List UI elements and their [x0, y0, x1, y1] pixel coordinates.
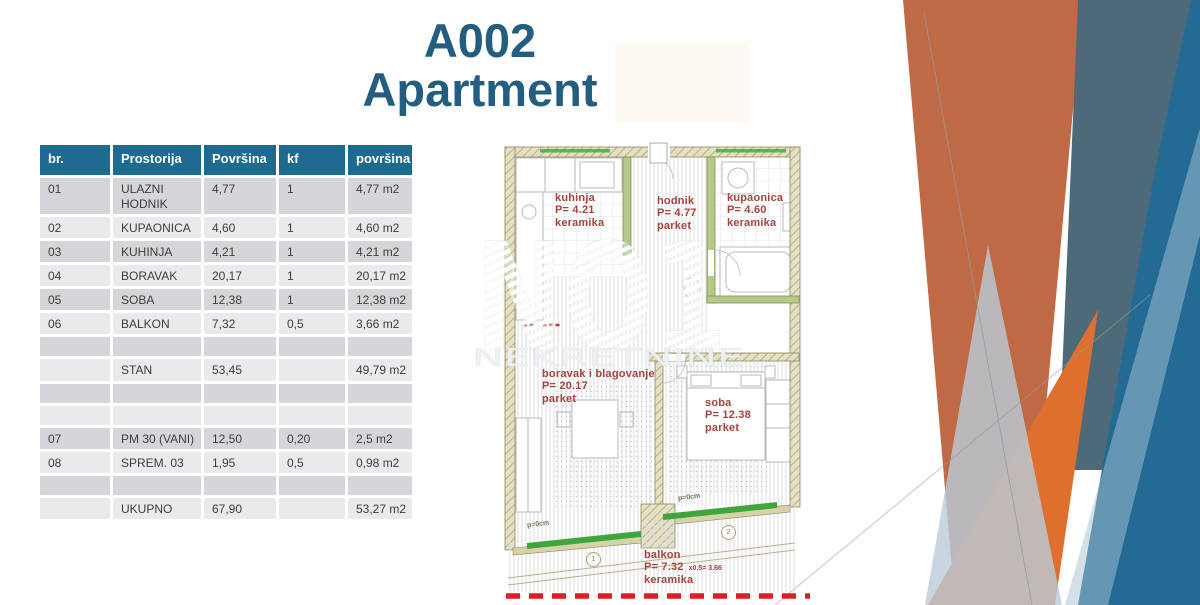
room-area: P= 4.77: [657, 207, 697, 219]
table-cell: [348, 337, 412, 356]
table-header-cell: površina: [348, 145, 412, 175]
table-cell: 08: [40, 452, 110, 473]
table-cell: 4,21: [204, 241, 276, 262]
room-floor-finish: keramika: [644, 574, 722, 586]
table-cell: [40, 359, 110, 381]
table-cell: [40, 406, 110, 425]
room-area-value: P= 12.38: [705, 409, 751, 421]
table-cell: KUPAONICA: [113, 217, 201, 238]
table-header-cell: Površina: [204, 145, 276, 175]
table-cell: [40, 337, 110, 356]
room-area: P= 20.17: [542, 380, 655, 392]
table-cell: 2,5 m2: [348, 428, 412, 449]
table-cell: 1: [279, 178, 345, 214]
table-row: 06BALKON7,320,53,66 m2: [40, 313, 412, 334]
table-row: UKUPNO67,9053,27 m2: [40, 498, 412, 519]
table-header-row: br.ProstorijaPovršinakfpovršina: [40, 145, 412, 175]
table-cell: [348, 406, 412, 425]
slide-title-line1: A002: [255, 16, 705, 65]
table-cell: 03: [40, 241, 110, 262]
table-cell: 4,21 m2: [348, 241, 412, 262]
table-cell: 4,60: [204, 217, 276, 238]
room-area: P= 4.60: [727, 204, 783, 216]
table-row: STAN53,4549,79 m2: [40, 359, 412, 381]
room-area: P= 12.38: [705, 409, 751, 421]
room-name: balkon: [644, 549, 722, 561]
room-name: kuhinja: [555, 192, 604, 204]
table-cell: 67,90: [204, 498, 276, 519]
table-cell: [40, 384, 110, 403]
table-row: [40, 406, 412, 425]
door-tag-2: 2: [721, 525, 736, 540]
table-cell: 1: [279, 265, 345, 286]
table-cell: SPREM. 03: [113, 452, 201, 473]
table-cell: [113, 476, 201, 495]
table-cell: [279, 476, 345, 495]
table-cell: [113, 337, 201, 356]
table-cell: 20,17: [204, 265, 276, 286]
area-table: br.ProstorijaPovršinakfpovršina01ULAZNI …: [40, 145, 412, 522]
table-cell: [348, 384, 412, 403]
corner-decoration: [775, 0, 1200, 605]
table-cell: 0,20: [279, 428, 345, 449]
table-cell: [113, 384, 201, 403]
room-label-kupaonica: kupaonicaP= 4.60keramika: [727, 192, 783, 229]
table-cell: [348, 476, 412, 495]
table-cell: PM 30 (VANI): [113, 428, 201, 449]
table-cell: 1: [279, 241, 345, 262]
table-cell: BALKON: [113, 313, 201, 334]
table-cell: 0,5: [279, 313, 345, 334]
table-cell: [113, 406, 201, 425]
table-cell: [279, 406, 345, 425]
table-cell: 4,60 m2: [348, 217, 412, 238]
table-cell: 02: [40, 217, 110, 238]
table-cell: 4,77: [204, 178, 276, 214]
table-cell: 05: [40, 289, 110, 310]
room-label-boravak: boravak i blagovanjeP= 20.17parket: [542, 368, 655, 405]
table-cell: 1: [279, 289, 345, 310]
room-area-value: P= 4.21: [555, 204, 595, 216]
table-cell: UKUPNO: [113, 498, 201, 519]
table-cell: 4,77 m2: [348, 178, 412, 214]
table-cell: ULAZNI HODNIK: [113, 178, 201, 214]
table-cell: 0,98 m2: [348, 452, 412, 473]
room-label-hodnik: hodnikP= 4.77parket: [657, 195, 697, 232]
table-cell: 06: [40, 313, 110, 334]
table-header-cell: br.: [40, 145, 110, 175]
room-floor-finish: keramika: [555, 217, 604, 229]
table-cell: 04: [40, 265, 110, 286]
table-cell: 3,66 m2: [348, 313, 412, 334]
table-cell: 49,79 m2: [348, 359, 412, 381]
room-name: hodnik: [657, 195, 697, 207]
table-cell: 53,27 m2: [348, 498, 412, 519]
room-area-value: P= 20.17: [542, 380, 588, 392]
watermark: NO1 NEKRETNINE: [472, 212, 744, 386]
table-cell: [279, 359, 345, 381]
room-name: soba: [705, 397, 751, 409]
table-cell: [279, 384, 345, 403]
table-cell: [279, 498, 345, 519]
table-cell: [204, 406, 276, 425]
room-floor-finish: parket: [705, 422, 751, 434]
table-cell: [204, 476, 276, 495]
table-cell: STAN: [113, 359, 201, 381]
slide-title-line2: Apartment: [255, 65, 705, 114]
room-area: P= 7.32x0.5= 3.66: [644, 561, 722, 573]
table-row: [40, 337, 412, 356]
room-area: P= 4.21: [555, 204, 604, 216]
table-row: 03KUHINJA4,2114,21 m2: [40, 241, 412, 262]
room-floor-finish: parket: [657, 220, 697, 232]
room-label-balkon: balkonP= 7.32x0.5= 3.66keramika: [644, 549, 722, 586]
table-row: 05SOBA12,38112,38 m2: [40, 289, 412, 310]
table-row: 07PM 30 (VANI)12,500,202,5 m2: [40, 428, 412, 449]
table-cell: SOBA: [113, 289, 201, 310]
table-row: [40, 384, 412, 403]
room-name: boravak i blagovanje: [542, 368, 655, 380]
room-floor-finish: parket: [542, 393, 655, 405]
room-label-soba: sobaP= 12.38parket: [705, 397, 751, 434]
table-cell: BORAVAK: [113, 265, 201, 286]
table-cell: [204, 384, 276, 403]
table-cell: [40, 476, 110, 495]
door-tag-1: 1: [586, 552, 601, 567]
presentation-slide: NO1 NEKRETNINE A002 Apartment br.Prostor…: [0, 0, 1200, 605]
table-cell: 12,38 m2: [348, 289, 412, 310]
table-cell: 07: [40, 428, 110, 449]
slide-title: A002 Apartment: [255, 16, 705, 115]
table-cell: [204, 337, 276, 356]
room-area-value: P= 4.77: [657, 207, 697, 219]
table-cell: 12,38: [204, 289, 276, 310]
table-row: 04BORAVAK20,17120,17 m2: [40, 265, 412, 286]
room-area-coefficient: x0.5= 3.66: [689, 565, 722, 572]
table-cell: 7,32: [204, 313, 276, 334]
table-row: 01ULAZNI HODNIK4,7714,77 m2: [40, 178, 412, 214]
room-area-value: P= 7.32: [644, 561, 684, 573]
room-area-value: P= 4.60: [727, 204, 767, 216]
floor-plan: NO1 NEKRETNINE: [472, 42, 810, 596]
table-cell: 1: [279, 217, 345, 238]
table-cell: 53,45: [204, 359, 276, 381]
room-name: kupaonica: [727, 192, 783, 204]
table-cell: 1,95: [204, 452, 276, 473]
table-cell: 01: [40, 178, 110, 214]
table-row: 08SPREM. 031,950,50,98 m2: [40, 452, 412, 473]
table-header-cell: Prostorija: [113, 145, 201, 175]
room-label-kuhinja: kuhinjaP= 4.21keramika: [555, 192, 604, 229]
table-cell: 12,50: [204, 428, 276, 449]
table-cell: [279, 337, 345, 356]
room-floor-finish: keramika: [727, 217, 783, 229]
table-cell: 20,17 m2: [348, 265, 412, 286]
table-row: [40, 476, 412, 495]
table-cell: [40, 498, 110, 519]
table-row: 02KUPAONICA4,6014,60 m2: [40, 217, 412, 238]
table-cell: KUHINJA: [113, 241, 201, 262]
table-header-cell: kf: [279, 145, 345, 175]
table-cell: 0,5: [279, 452, 345, 473]
